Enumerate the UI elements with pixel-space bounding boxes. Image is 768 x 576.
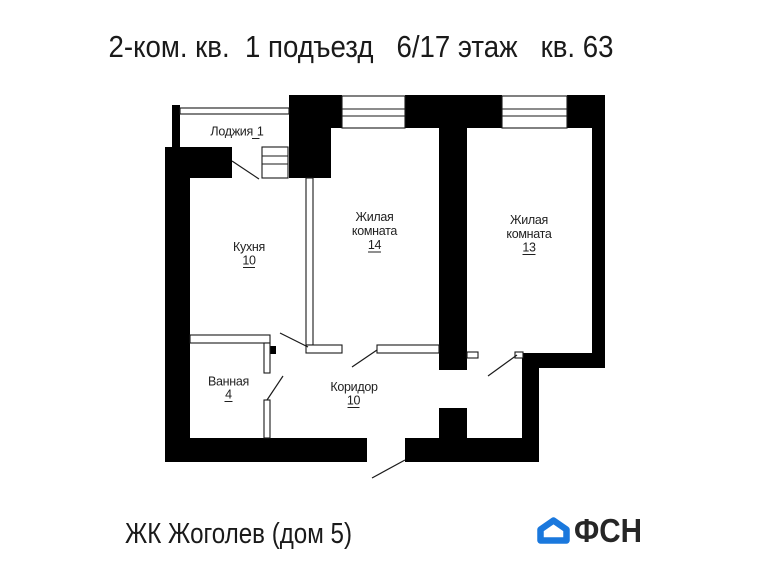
floorplan-canvas: 2-ком. кв. 1 подъезд 6/17 этаж кв. 63 xyxy=(0,0,768,576)
wall-left-outer xyxy=(165,147,190,462)
door-entrance xyxy=(372,460,405,478)
partition-bath-top xyxy=(190,335,270,343)
floorplan-page: 2-ком. кв. 1 подъезд 6/17 этаж кв. 63 xyxy=(0,0,768,576)
label-living1-area: 14 xyxy=(368,238,382,252)
walls xyxy=(165,95,605,462)
wall-bath-doorframe xyxy=(270,346,276,354)
wall-corner-block xyxy=(165,147,232,178)
wall-rooms-divider xyxy=(439,128,467,370)
label-bathroom-area: 4 xyxy=(225,388,232,402)
door-living1 xyxy=(352,350,377,367)
label-corridor-area: 10 xyxy=(347,394,361,408)
label-living2-name2: комната xyxy=(506,227,552,241)
label-bathroom-name: Ванная xyxy=(208,375,249,389)
label-loggia-area: 1 xyxy=(257,125,264,139)
logo: ФСН xyxy=(541,512,643,549)
label-living2-name1: Жилая xyxy=(510,213,548,227)
partition-corridor-living xyxy=(377,345,439,353)
doors xyxy=(232,161,517,478)
door-bathroom xyxy=(267,376,283,400)
wall-top-band-left xyxy=(289,95,342,128)
window-living1 xyxy=(342,96,405,128)
window-living2 xyxy=(502,96,567,128)
window-living2-frame xyxy=(502,96,567,128)
label-loggia: Лоджия1 xyxy=(210,125,264,139)
window-living1-frame xyxy=(342,96,405,128)
room-labels: Лоджия1 Кухня 10 Жилая комната 14 Жилая … xyxy=(208,125,552,408)
partition-bath-right-upper xyxy=(264,343,270,373)
label-kitchen-area: 10 xyxy=(242,254,256,268)
door-loggia xyxy=(232,161,259,179)
balcony-window-frame xyxy=(262,147,288,178)
threshold-living2 xyxy=(467,352,478,358)
wall-bottom-left xyxy=(165,438,367,462)
balcony-window-unit xyxy=(262,147,288,178)
door-kitchen xyxy=(280,333,308,347)
wall-center-block xyxy=(289,128,331,178)
wall-right-outer xyxy=(592,95,605,368)
partition-kitchen-living xyxy=(306,178,313,345)
partition-bath-right-lower xyxy=(264,400,270,438)
project-name: ЖК Жоголев (дом 5) xyxy=(125,518,352,550)
label-living2-area: 13 xyxy=(522,241,536,255)
wall-top-band-mid xyxy=(405,95,502,128)
label-corridor-name: Коридор xyxy=(330,380,378,394)
label-living1-name1: Жилая xyxy=(355,210,393,224)
wall-bottom-right xyxy=(405,438,539,462)
page-title: 2-ком. кв. 1 подъезд 6/17 этаж кв. 63 xyxy=(109,29,614,64)
label-loggia-name: Лоджия xyxy=(210,125,253,139)
label-living1-name2: комната xyxy=(352,224,398,238)
loggia-glazing xyxy=(180,108,289,114)
partition-kitchen-cap xyxy=(306,345,342,353)
door-living2 xyxy=(488,355,517,376)
logo-text: ФСН xyxy=(574,512,642,549)
label-kitchen-name: Кухня xyxy=(233,240,265,254)
logo-house-icon xyxy=(541,521,567,541)
wall-corridor-pier xyxy=(439,408,467,438)
wall-loggia-left-stub xyxy=(172,105,180,147)
